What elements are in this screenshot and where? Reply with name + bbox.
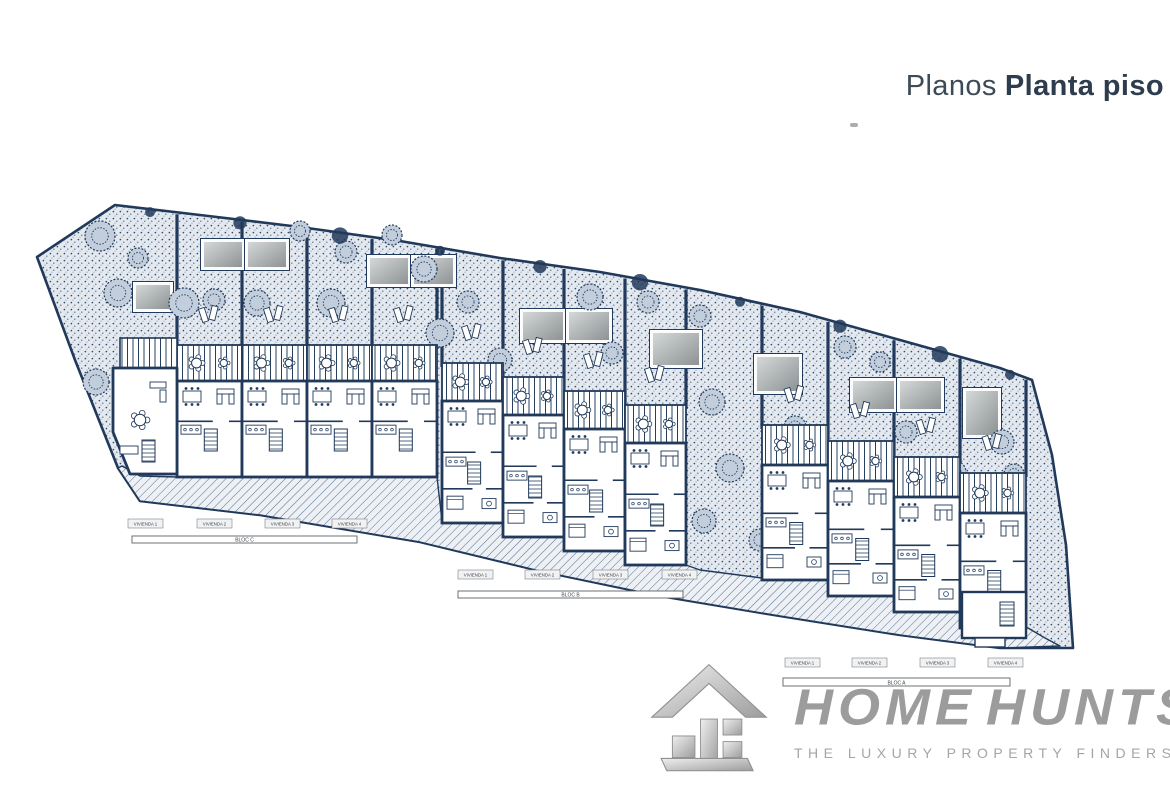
logo-word-hunts: HUNTS (986, 679, 1170, 735)
svg-text:VIVIENDA 4: VIVIENDA 4 (668, 572, 692, 577)
svg-text:VIVIENDA 1: VIVIENDA 1 (464, 572, 488, 577)
title-prefix: Planos (906, 70, 997, 102)
end-unit (113, 338, 177, 474)
house-3d-icon (648, 658, 770, 782)
svg-text:VIVIENDA 4: VIVIENDA 4 (338, 521, 362, 526)
logo-tagline: THE LUXURY PROPERTY FINDERS (794, 745, 1170, 761)
svg-text:VIVIENDA 3: VIVIENDA 3 (599, 572, 623, 577)
page-title: PlanosPlanta piso (906, 70, 1164, 103)
title-emphasis: Planta piso (1005, 70, 1164, 102)
stray-mark (850, 123, 858, 127)
svg-text:VIVIENDA 2: VIVIENDA 2 (531, 572, 555, 577)
page: VIVIENDA 1VIVIENDA 2VIVIENDA 3VIVIENDA 4… (0, 0, 1170, 785)
svg-text:VIVIENDA 2: VIVIENDA 2 (203, 521, 227, 526)
svg-text:BLOC C: BLOC C (235, 537, 254, 543)
brand-logo: HOMEHUNTS THE LUXURY PROPERTY FINDERS (648, 658, 1170, 782)
svg-text:VIVIENDA 1: VIVIENDA 1 (134, 521, 158, 526)
svg-text:VIVIENDA 3: VIVIENDA 3 (271, 521, 295, 526)
logo-text: HOMEHUNTS THE LUXURY PROPERTY FINDERS (794, 682, 1170, 761)
svg-text:BLOC B: BLOC B (561, 592, 580, 598)
annex-rooms (962, 592, 1026, 647)
logo-word-home: HOME (794, 679, 976, 735)
logo-wordmark: HOMEHUNTS (794, 682, 1170, 733)
